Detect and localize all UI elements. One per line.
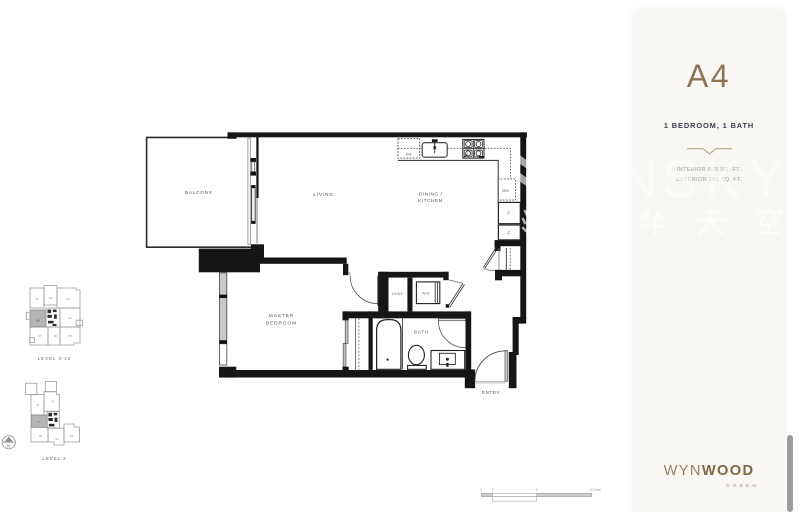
svg-text:MW: MW: [502, 189, 509, 193]
svg-text:08: 08: [36, 319, 40, 323]
svg-text:KITCHEN: KITCHEN: [418, 198, 443, 204]
svg-text:04: 04: [68, 316, 72, 320]
svg-text:BATH: BATH: [414, 329, 429, 334]
svg-text:LIVING: LIVING: [313, 192, 334, 198]
svg-text:07: 07: [38, 334, 42, 338]
svg-text:LEVEL 2: LEVEL 2: [42, 456, 66, 461]
svg-text:06: 06: [54, 334, 58, 338]
svg-text:02: 02: [49, 296, 53, 300]
svg-text:W/D: W/D: [422, 292, 430, 296]
svg-text:10 Feet: 10 Feet: [589, 488, 600, 492]
svg-text:F: F: [508, 211, 511, 216]
svg-text:5: 5: [536, 488, 538, 492]
svg-text:05: 05: [68, 334, 72, 338]
svg-text:ENTRY: ENTRY: [482, 390, 500, 395]
svg-text:N: N: [7, 444, 10, 449]
svg-text:01: 01: [36, 403, 40, 407]
svg-text:0: 0: [480, 488, 482, 492]
svg-text:HVAC: HVAC: [392, 292, 403, 296]
svg-text:05: 05: [39, 434, 43, 438]
svg-text:1: 1: [492, 488, 494, 492]
svg-text:DW: DW: [406, 152, 413, 156]
svg-text:03: 03: [70, 434, 74, 438]
svg-text:02: 02: [51, 400, 55, 404]
svg-text:06: 06: [37, 420, 41, 424]
svg-text:MASTER: MASTER: [269, 313, 294, 319]
svg-text:BEDROOM: BEDROOM: [266, 321, 297, 327]
svg-text:DINING /: DINING /: [419, 191, 443, 197]
svg-text:03: 03: [66, 297, 70, 301]
svg-text:F: F: [508, 231, 511, 236]
svg-text:04: 04: [55, 437, 59, 441]
svg-text:LEVEL 3-22: LEVEL 3-22: [38, 356, 72, 361]
svg-text:01: 01: [35, 297, 39, 301]
svg-text:BALCONY: BALCONY: [185, 190, 213, 195]
